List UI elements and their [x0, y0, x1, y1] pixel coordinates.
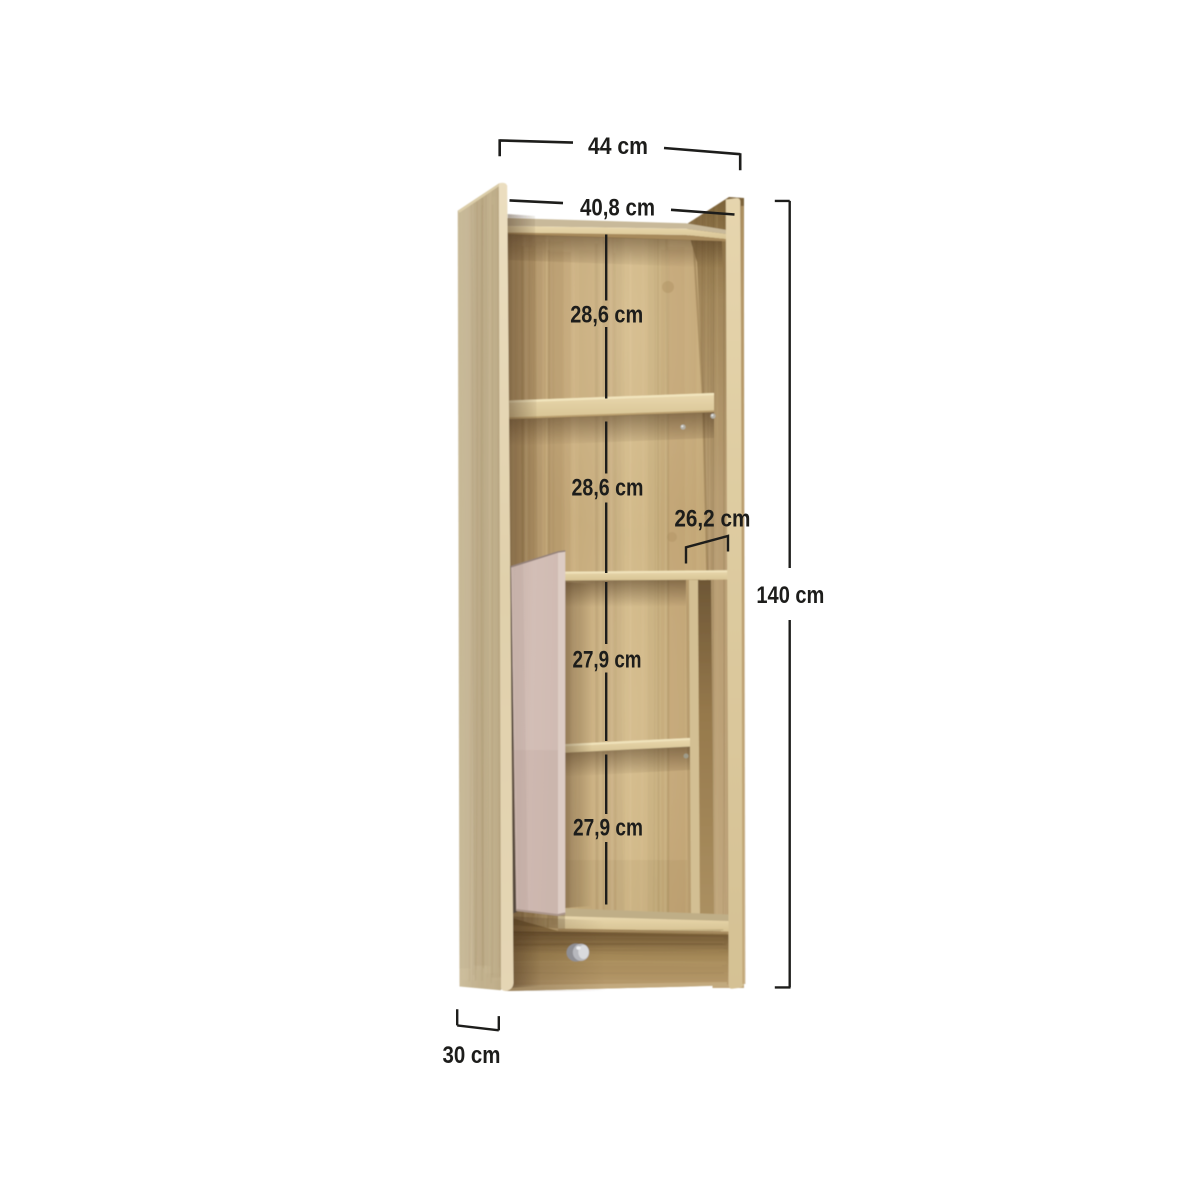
- svg-text:26,2 cm: 26,2 cm: [674, 507, 750, 533]
- svg-text:28,6 cm: 28,6 cm: [570, 302, 643, 328]
- svg-text:28,6 cm: 28,6 cm: [572, 476, 644, 502]
- svg-text:27,9 cm: 27,9 cm: [573, 647, 642, 673]
- svg-text:30 cm: 30 cm: [443, 1043, 501, 1069]
- svg-text:40,8 cm: 40,8 cm: [580, 196, 655, 222]
- svg-text:140 cm: 140 cm: [756, 583, 824, 609]
- svg-text:27,9 cm: 27,9 cm: [573, 816, 643, 842]
- svg-text:44 cm: 44 cm: [588, 134, 648, 160]
